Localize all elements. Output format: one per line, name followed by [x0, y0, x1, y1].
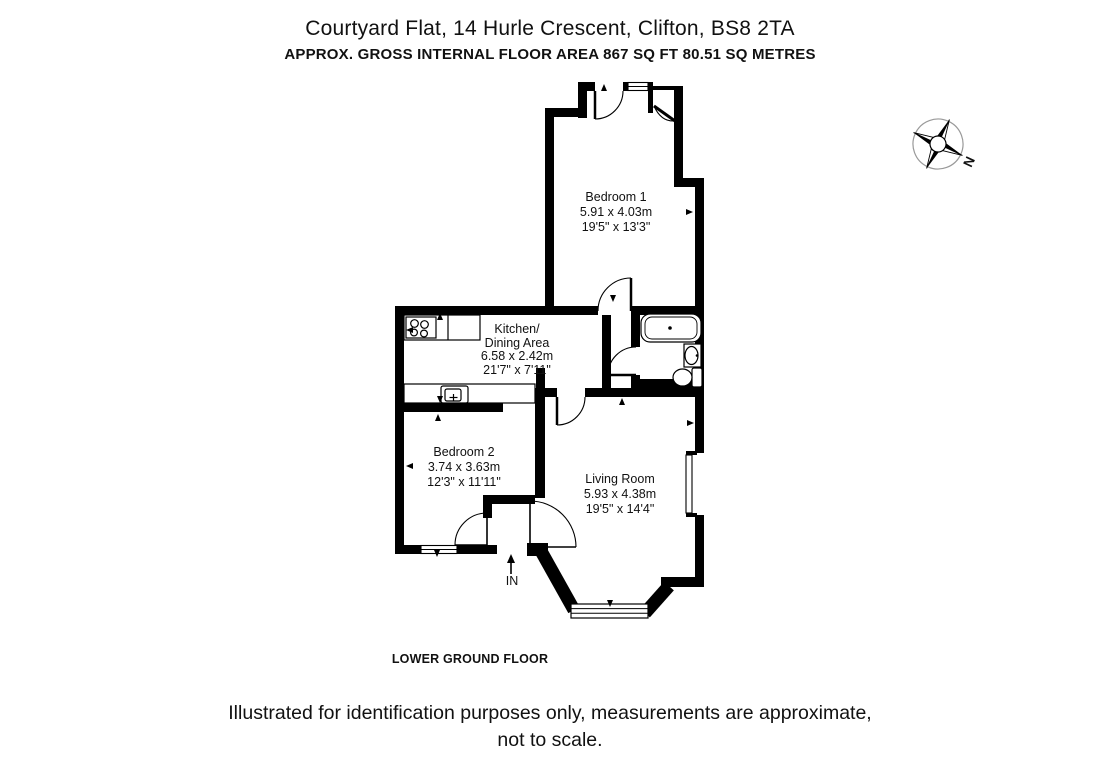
wall-segment: [395, 306, 404, 553]
bathroom-fixtures: [641, 314, 702, 387]
disclaimer: Illustrated for identification purposes …: [0, 700, 1100, 754]
measurement-arrow: [435, 414, 441, 421]
door-swing: [598, 278, 631, 311]
basin-icon: [684, 344, 701, 367]
measurement-arrow: [687, 420, 694, 426]
bay-window: [571, 604, 648, 618]
room-name-line2: Dining Area: [481, 337, 553, 351]
room-size-imperial: 21'7" x 7'11": [481, 364, 553, 378]
wall-segment: [578, 82, 595, 91]
room-name: Living Room: [584, 472, 656, 487]
door-swing: [595, 91, 623, 119]
room-size-metric: 6.58 x 2.42m: [481, 350, 553, 364]
wall-segment: [457, 545, 497, 554]
wall-segment: [602, 315, 611, 388]
door-swing: [557, 397, 585, 425]
wall-segment: [631, 315, 640, 347]
room-size-imperial: 19'5" x 14'4": [584, 502, 656, 517]
measurement-arrow: [686, 209, 693, 215]
floorplan-page: Courtyard Flat, 14 Hurle Crescent, Clift…: [0, 0, 1100, 777]
door-swing: [608, 347, 636, 375]
hob-icon: [406, 317, 436, 338]
floorplan-canvas: N: [0, 0, 1100, 777]
room-label-bedroom-1: Bedroom 1 5.91 x 4.03m 19'5" x 13'3": [580, 190, 652, 234]
room-size-metric: 5.93 x 4.38m: [584, 487, 656, 502]
windows: [421, 83, 697, 619]
room-size-imperial: 19'5" x 13'3": [580, 220, 652, 235]
measurement-arrow: [406, 463, 413, 469]
door-swing: [654, 106, 675, 121]
measurement-arrow: [619, 398, 625, 405]
kitchen-sink-icon: [441, 386, 468, 403]
room-size-metric: 5.91 x 4.03m: [580, 205, 652, 220]
wall-segment: [661, 577, 704, 587]
wall-segment: [395, 403, 503, 412]
bathtub-icon: [641, 314, 701, 342]
kitchen-counter: [404, 384, 535, 403]
wall-segment: [623, 82, 628, 91]
wall-segment: [674, 86, 683, 187]
room-size-imperial: 12'3" x 11'11": [427, 475, 501, 490]
toilet-icon: [673, 368, 702, 387]
compass-north-label: N: [960, 154, 978, 169]
disclaimer-line-2: not to scale.: [0, 727, 1100, 754]
room-name: Bedroom 2: [427, 445, 501, 460]
window: [628, 83, 648, 91]
room-label-living-room: Living Room 5.93 x 4.38m 19'5" x 14'4": [584, 472, 656, 516]
wall-segment: [395, 306, 598, 315]
room-name: Kitchen/: [481, 323, 553, 337]
wall-segment: [631, 388, 704, 397]
door-swing: [530, 501, 576, 547]
disclaimer-line-1: Illustrated for identification purposes …: [0, 700, 1100, 727]
entrance-arrow-icon: [507, 554, 515, 574]
compass-icon: N: [902, 108, 978, 180]
measurement-arrow: [601, 84, 607, 91]
wall-segment: [695, 515, 704, 579]
floor-name-label: LOWER GROUND FLOOR: [392, 652, 548, 666]
room-name: Bedroom 1: [580, 190, 652, 205]
wall-segment: [395, 545, 421, 554]
wall-segment: [648, 82, 653, 113]
measurement-arrow: [610, 295, 616, 302]
window: [686, 451, 697, 517]
room-label-kitchen-dining: Kitchen/ Dining Area 6.58 x 2.42m 21'7" …: [481, 323, 553, 377]
door-swing: [455, 513, 487, 545]
wall-segment: [535, 388, 545, 498]
room-size-metric: 3.74 x 3.63m: [427, 460, 501, 475]
wall-segment: [541, 551, 574, 610]
entrance-label: IN: [506, 574, 519, 588]
room-label-bedroom-2: Bedroom 2 3.74 x 3.63m 12'3" x 11'11": [427, 445, 501, 489]
